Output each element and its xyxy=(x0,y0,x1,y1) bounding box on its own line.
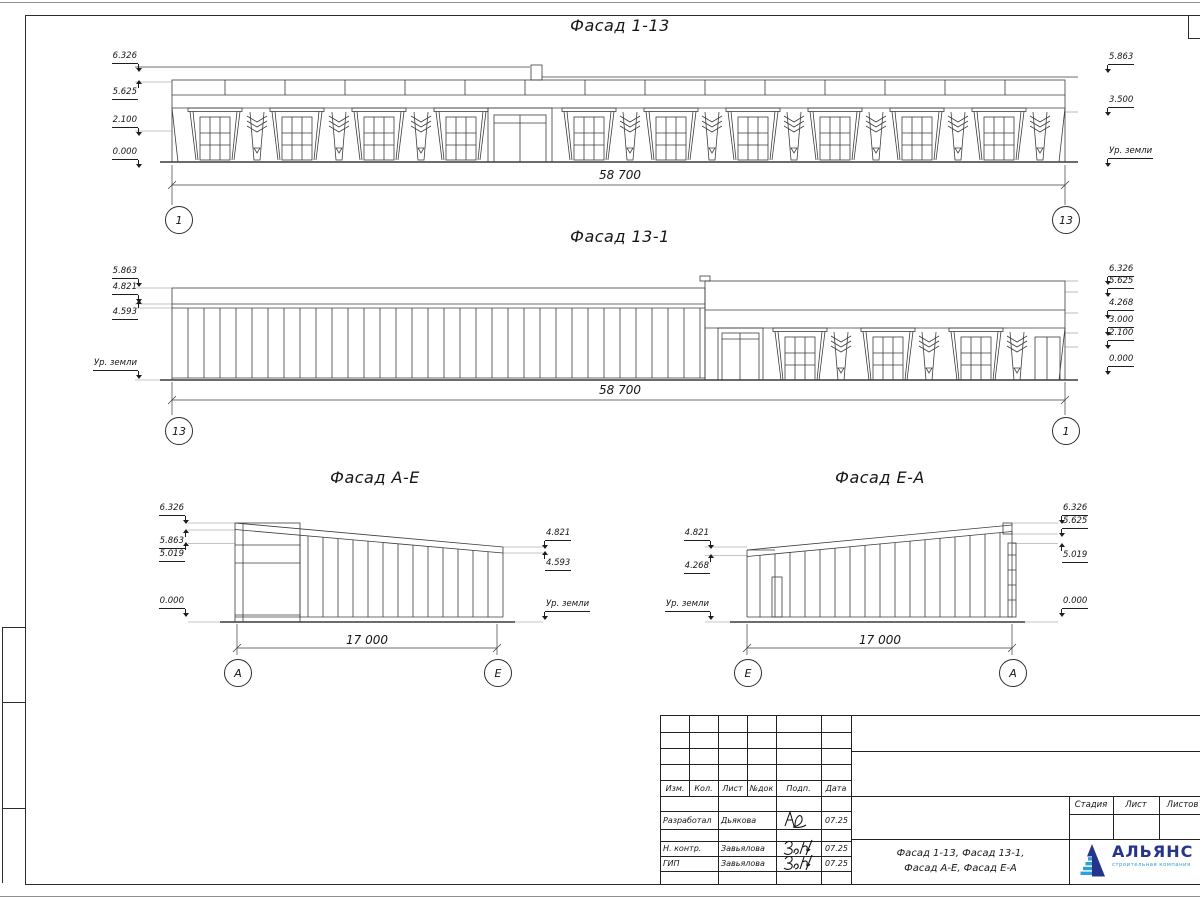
ground-level-mark: Ур. земли xyxy=(86,359,138,371)
axis-bubble-1: 1 xyxy=(165,206,193,234)
dimension-17000: 17 000 xyxy=(815,633,945,647)
level-mark: 5.019 xyxy=(147,550,185,562)
alliance-logo-icon xyxy=(1079,844,1105,877)
level-mark: 0.000 xyxy=(102,148,138,160)
ground-level-mark: Ур. земли xyxy=(545,600,590,612)
rev-header-list: Лист xyxy=(718,780,747,796)
date-developer: 07.25 xyxy=(823,811,850,829)
level-mark: 4.821 xyxy=(102,283,138,295)
level-mark: 3.000 xyxy=(1108,316,1134,328)
axis-label: Е xyxy=(745,667,752,680)
level-mark: 5.625 xyxy=(1062,517,1088,529)
axis-bubble-1: 1 xyxy=(1052,417,1080,445)
axis-bubble-13: 13 xyxy=(1052,206,1080,234)
rev-header-data: Дата xyxy=(821,780,851,796)
level-mark: 6.326 xyxy=(1108,265,1134,277)
view-title-facade-a-e: Фасад А-Е xyxy=(250,468,500,487)
name-ncontr: Завьялова xyxy=(721,841,775,856)
facade-a-e-drawing xyxy=(150,495,620,695)
level-mark: 5.863 xyxy=(1108,53,1134,65)
sheets-header: Листов xyxy=(1159,796,1200,814)
ground-level-mark: Ур. земли xyxy=(656,600,710,612)
alliance-logo: АЛЬЯНС строительная компания xyxy=(1079,844,1193,877)
name-developer: Дьякова xyxy=(721,811,775,829)
level-mark: 5.863 xyxy=(147,537,185,549)
level-mark: 5.625 xyxy=(102,88,138,100)
axis-label: 13 xyxy=(1059,214,1073,227)
signature-zavyalova xyxy=(779,854,819,871)
margin-strip-divider xyxy=(2,808,25,809)
level-mark: 4.268 xyxy=(672,562,710,574)
role-ncontr: Н. контр. xyxy=(663,841,718,856)
rev-header-kol: Кол. xyxy=(689,780,718,796)
logo-name: АЛЬЯНС xyxy=(1112,844,1193,860)
level-mark: 6.326 xyxy=(147,504,185,516)
document-title-line2: Фасад А-Е, Фасад Е-А xyxy=(904,862,1017,877)
facade-13-1-drawing xyxy=(130,255,1080,445)
level-mark: 5.863 xyxy=(102,267,138,279)
document-title-line1: Фасад 1-13, Фасад 13-1, xyxy=(897,847,1025,862)
axis-bubble-e: Е xyxy=(734,659,762,687)
level-mark: 6.326 xyxy=(102,52,138,64)
level-mark: 5.019 xyxy=(1062,551,1088,563)
level-mark: 4.821 xyxy=(672,529,710,541)
margin-strip-divider xyxy=(2,702,25,703)
rev-header-podp: Подп. xyxy=(776,780,821,796)
level-mark: 0.000 xyxy=(1062,597,1088,609)
rev-header-izm: Изм. xyxy=(661,780,689,796)
level-mark: 4.593 xyxy=(545,559,571,571)
facade-1-13-drawing xyxy=(130,45,1080,235)
margin-strip-line xyxy=(2,627,3,883)
ground-level-mark: Ур. земли xyxy=(1108,147,1153,159)
level-mark: 4.268 xyxy=(1108,299,1134,311)
axis-bubble-13: 13 xyxy=(165,417,193,445)
level-mark: 6.326 xyxy=(1062,504,1088,516)
level-mark: 3.500 xyxy=(1108,96,1134,108)
dimension-58700: 58 700 xyxy=(555,383,685,397)
margin-strip-divider xyxy=(2,627,25,628)
sheet-top-edge xyxy=(0,2,1200,3)
view-title-facade-1-13: Фасад 1-13 xyxy=(495,16,745,35)
role-developer: Разработал xyxy=(663,811,718,829)
axis-label: А xyxy=(234,667,242,680)
axis-label: Е xyxy=(495,667,502,680)
title-block: Изм. Кол. Лист №док Подп. Дата Разработа… xyxy=(660,715,1200,885)
level-mark: 2.100 xyxy=(102,116,138,128)
signature-dyakova xyxy=(779,808,819,830)
rev-header-ndok: №док xyxy=(747,780,776,796)
document-title: Фасад 1-13, Фасад 13-1, Фасад А-Е, Фасад… xyxy=(854,841,1067,882)
level-mark: 2.100 xyxy=(1108,329,1134,341)
date-ncontr: 07.25 xyxy=(823,841,850,856)
date-gip: 07.25 xyxy=(823,856,850,871)
drawing-sheet: Фасад 1-13 xyxy=(0,0,1200,900)
axis-bubble-a: А xyxy=(999,659,1027,687)
axis-bubble-a: А xyxy=(224,659,252,687)
frame-corner-box xyxy=(1188,15,1200,39)
sheet-bottom-edge xyxy=(0,896,1200,897)
level-mark: 5.625 xyxy=(1108,277,1134,289)
axis-label: 13 xyxy=(172,425,186,438)
view-title-facade-e-a: Фасад Е-А xyxy=(755,468,1005,487)
level-mark: 4.593 xyxy=(102,308,138,320)
axis-label: 1 xyxy=(1063,425,1070,438)
axis-label: 1 xyxy=(176,214,183,227)
dimension-17000: 17 000 xyxy=(302,633,432,647)
dimension-58700: 58 700 xyxy=(555,168,685,182)
sheet-header: Лист xyxy=(1113,796,1159,814)
level-mark: 0.000 xyxy=(147,597,185,609)
level-mark: 4.821 xyxy=(545,529,571,541)
view-title-facade-13-1: Фасад 13-1 xyxy=(495,227,745,246)
axis-bubble-e: Е xyxy=(484,659,512,687)
role-gip: ГИП xyxy=(663,856,718,871)
stage-header: Стадия xyxy=(1069,796,1113,814)
axis-label: А xyxy=(1009,667,1017,680)
name-gip: Завьялова xyxy=(721,856,775,871)
level-mark: 0.000 xyxy=(1108,355,1134,367)
logo-tagline: строительная компания xyxy=(1112,862,1193,868)
